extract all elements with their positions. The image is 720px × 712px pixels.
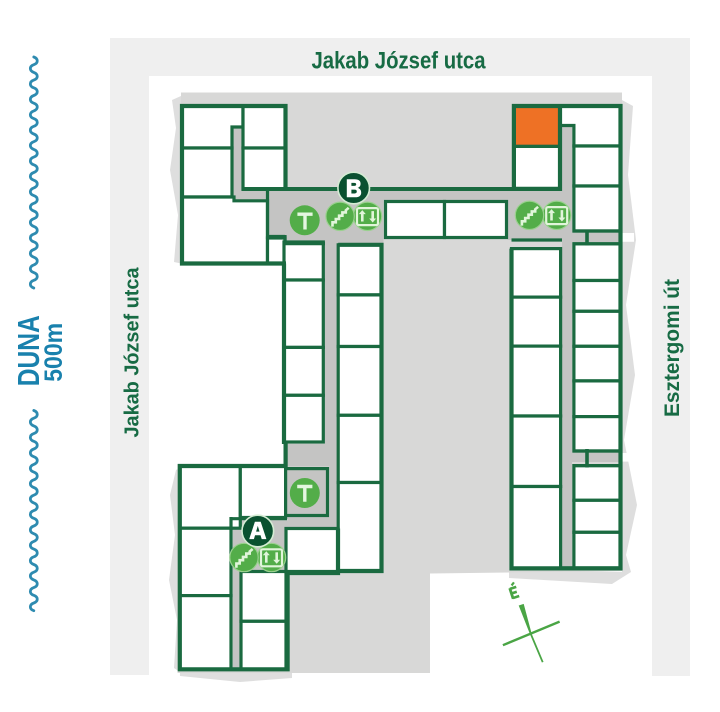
- svg-text:Jakab József utca: Jakab József utca: [122, 267, 144, 438]
- svg-text:500m: 500m: [40, 323, 68, 382]
- svg-text:Esztergomi út: Esztergomi út: [661, 279, 684, 417]
- svg-text:Jakab József utca: Jakab József utca: [312, 48, 487, 75]
